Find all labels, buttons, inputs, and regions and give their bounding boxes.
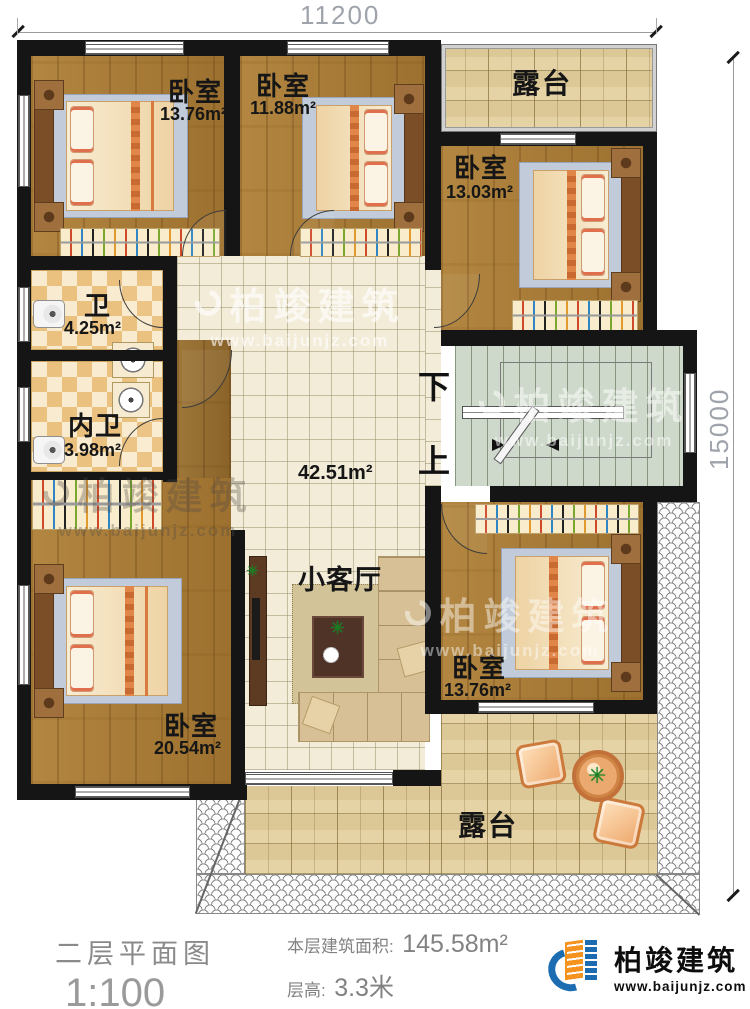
- terrace-chair: [515, 738, 568, 789]
- wall: [441, 330, 697, 346]
- window: [18, 95, 30, 187]
- roof-strip-right: [657, 502, 700, 874]
- nightstand: [34, 564, 64, 594]
- window: [18, 585, 30, 685]
- wardrobe-bottom-left: [32, 478, 162, 530]
- room-label-inner-bathroom: 内卫: [68, 406, 122, 443]
- drawing-info-block: 本层建筑面积: 145.58m² 层高: 3.3米: [287, 930, 508, 1004]
- dimension-line-right: [733, 58, 734, 896]
- window: [75, 786, 190, 798]
- bed-bottom-right: [497, 534, 641, 692]
- bed-stripe: [151, 101, 154, 210]
- bed-right: [515, 148, 641, 302]
- room-label-living: 小客厅: [298, 558, 382, 597]
- bed-pillow: [581, 174, 605, 222]
- bed-pillow: [581, 616, 605, 665]
- wall: [490, 486, 697, 502]
- logo-building-orange-icon: [565, 940, 583, 981]
- nightstand: [611, 662, 641, 692]
- window: [684, 373, 696, 453]
- bed-pillow: [364, 161, 388, 207]
- floor-height-label: 层高:: [287, 981, 326, 1000]
- floor-area-label: 本层建筑面积:: [287, 937, 394, 956]
- bed-top-middle: [298, 84, 424, 232]
- stair-handrail: [462, 406, 624, 419]
- room-label-bedroom-right: 卧室: [454, 148, 508, 185]
- nightstand: [394, 84, 424, 114]
- dimension-line-top: [17, 32, 657, 33]
- floor-terrace-bottom-right: [441, 714, 657, 874]
- room-area-bathroom: 4.25m²: [64, 318, 121, 339]
- plant-icon: ✳: [588, 763, 606, 789]
- floor-plan-page: ✳ ✳ ✳ 卧室 13.76m² 卧室 11.8: [0, 0, 750, 1009]
- window: [287, 41, 389, 55]
- bed-stripe: [145, 586, 148, 697]
- room-area-bedroom-bottom-right: 13.76m²: [444, 680, 511, 701]
- stair-up-label: 上: [418, 436, 450, 482]
- plate: [322, 646, 340, 664]
- window: [18, 287, 30, 342]
- nightstand: [611, 148, 641, 178]
- logo-building-blue-icon: [585, 938, 597, 980]
- room-area-bedroom-top-left: 13.76m²: [160, 104, 227, 125]
- bed-stripe: [350, 105, 359, 212]
- wall: [425, 486, 441, 714]
- dimension-extension: [17, 18, 18, 34]
- stair-arrow-right: [492, 439, 505, 451]
- wall: [17, 350, 163, 361]
- floor-area-value: 145.58m²: [402, 930, 508, 958]
- room-area-bedroom-bottom-left: 20.54m²: [154, 738, 221, 759]
- drawing-scale: 1:100: [65, 971, 165, 1009]
- plant-icon: ✳: [330, 618, 345, 639]
- company-website: www.baijunjz.com: [614, 979, 747, 994]
- bed-pillow: [581, 561, 605, 610]
- wall: [163, 256, 177, 482]
- stair-arrow-left: [546, 439, 559, 451]
- bed-pillow: [70, 159, 94, 206]
- bed-stripe: [549, 556, 558, 670]
- wall: [224, 40, 240, 256]
- room-label-terrace-bottom: 露台: [458, 804, 518, 844]
- company-name: 柏竣建筑: [614, 939, 747, 979]
- wardrobe-bottom-right: [475, 504, 639, 534]
- plant-icon: ✳: [246, 562, 259, 580]
- window: [85, 41, 184, 55]
- wall: [231, 530, 245, 790]
- room-label-terrace-top: 露台: [512, 62, 572, 102]
- tv: [252, 598, 260, 660]
- toilet: [33, 436, 65, 464]
- dimension-right-value: 15000: [704, 388, 735, 470]
- bed-headboard: [621, 545, 641, 681]
- bed-pillow: [581, 228, 605, 276]
- company-logo: 柏竣建筑 www.baijunjz.com: [548, 936, 747, 996]
- wall: [31, 472, 163, 480]
- floor-terrace-bottom-left: [245, 786, 441, 874]
- wall: [17, 256, 177, 270]
- dimension-extension: [656, 18, 657, 34]
- room-area-hall: 42.51m²: [298, 462, 373, 485]
- bed-pillow: [364, 109, 388, 155]
- window: [478, 702, 594, 713]
- bed-pillow: [70, 106, 94, 153]
- wall: [425, 146, 441, 270]
- drawing-title-block: 二层平面图1:100: [55, 932, 305, 1009]
- wall: [643, 502, 657, 714]
- wardrobe-right: [512, 300, 638, 331]
- room-area-inner-bathroom: 3.98m²: [64, 440, 121, 461]
- window: [500, 133, 576, 145]
- wall: [643, 132, 657, 346]
- company-logo-text: 柏竣建筑 www.baijunjz.com: [614, 939, 747, 994]
- nightstand: [34, 688, 64, 718]
- bed-pillow: [70, 644, 94, 692]
- stair-down-label: 下: [418, 362, 450, 408]
- bed-pillow: [70, 590, 94, 638]
- floor-height-value: 3.3米: [334, 974, 394, 1002]
- wall: [393, 770, 441, 786]
- wall: [425, 40, 441, 146]
- room-area-bedroom-right: 13.03m²: [446, 182, 513, 203]
- toilet: [33, 300, 65, 328]
- window: [245, 772, 393, 785]
- nightstand: [611, 272, 641, 302]
- window: [18, 387, 30, 442]
- terrace-chair: [592, 796, 647, 851]
- drawing-title: 二层平面图: [55, 939, 215, 969]
- nightstand: [611, 534, 641, 564]
- roof-strip-bottom: [196, 874, 700, 914]
- room-area-bedroom-top-middle: 11.88m²: [250, 98, 316, 119]
- dimension-top-value: 11200: [300, 0, 380, 31]
- company-logo-icon: [548, 936, 606, 996]
- bed-bottom-left: [34, 564, 186, 718]
- sofa-chaise: [378, 556, 428, 592]
- nightstand: [34, 80, 64, 110]
- bed-stripe: [567, 170, 576, 281]
- bed-stripe: [131, 101, 140, 210]
- bed-stripe: [125, 586, 134, 697]
